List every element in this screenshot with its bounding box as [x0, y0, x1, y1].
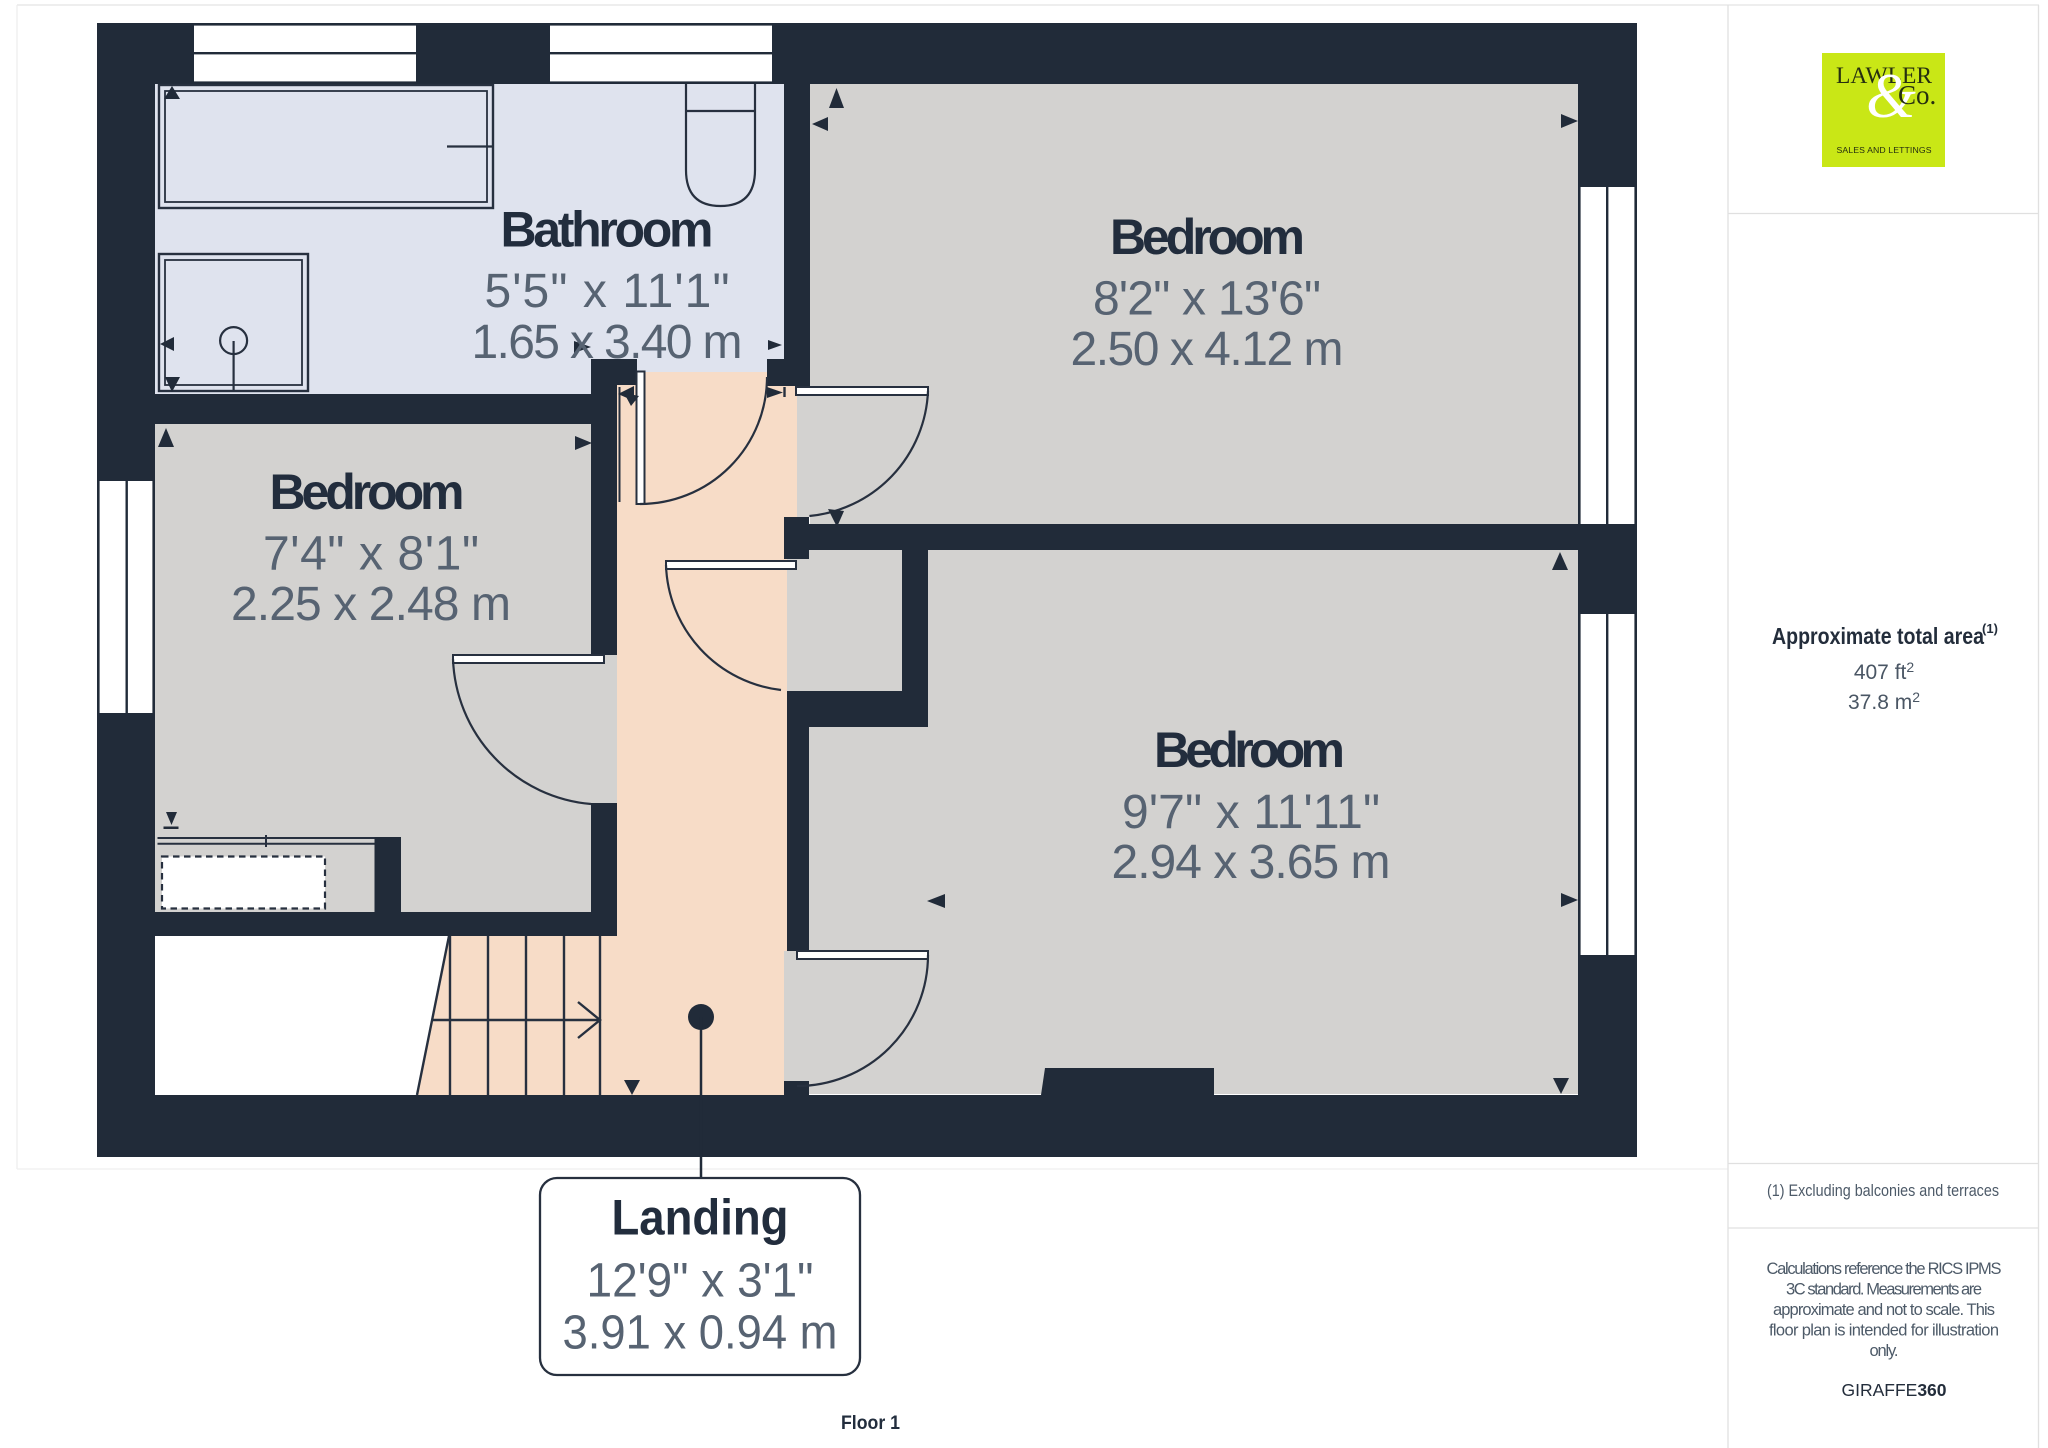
- svg-text:Approximate total area: Approximate total area: [1772, 623, 1984, 649]
- svg-text:Co.: Co.: [1898, 80, 1936, 110]
- svg-text:Bedroom: Bedroom: [270, 464, 465, 520]
- svg-text:3.91 x 0.94 m: 3.91 x 0.94 m: [563, 1307, 838, 1360]
- svg-text:(1) Excluding balconies and te: (1) Excluding balconies and terraces: [1767, 1181, 1999, 1200]
- svg-text:Calculations reference the RIC: Calculations reference the RICS IPMS: [1767, 1260, 2002, 1278]
- svg-text:1.65 x 3.40 m: 1.65 x 3.40 m: [472, 316, 743, 369]
- svg-text:3C standard. Measurements are: 3C standard. Measurements are: [1786, 1281, 1982, 1299]
- svg-text:approximate and not to scale.: approximate and not to scale. This: [1773, 1301, 1995, 1319]
- svg-text:407 ft2: 407 ft2: [1854, 659, 1915, 684]
- svg-text:GIRAFFE360: GIRAFFE360: [1841, 1380, 1946, 1400]
- svg-text:Bathroom: Bathroom: [501, 202, 714, 258]
- svg-text:9'7" x 11'11": 9'7" x 11'11": [1122, 786, 1380, 839]
- svg-text:37.8 m2: 37.8 m2: [1848, 689, 1920, 714]
- svg-text:2.25 x 2.48 m: 2.25 x 2.48 m: [231, 578, 511, 631]
- svg-text:Bedroom: Bedroom: [1110, 209, 1305, 265]
- svg-text:5'5" x 11'1": 5'5" x 11'1": [485, 265, 730, 318]
- svg-text:(1): (1): [1982, 621, 1998, 636]
- svg-text:12'9" x 3'1": 12'9" x 3'1": [587, 1255, 814, 1308]
- svg-text:SALES AND LETTINGS: SALES AND LETTINGS: [1837, 145, 1932, 155]
- svg-text:only.: only.: [1870, 1342, 1899, 1360]
- svg-text:floor plan is intended for ill: floor plan is intended for illustration: [1769, 1322, 1999, 1340]
- svg-text:Bedroom: Bedroom: [1154, 722, 1345, 778]
- svg-text:Landing: Landing: [612, 1190, 789, 1246]
- svg-text:7'4" x 8'1": 7'4" x 8'1": [263, 528, 479, 581]
- svg-text:2.50 x 4.12 m: 2.50 x 4.12 m: [1071, 323, 1344, 376]
- svg-text:Floor 1: Floor 1: [841, 1413, 900, 1434]
- svg-text:2.94 x 3.65 m: 2.94 x 3.65 m: [1112, 836, 1391, 889]
- svg-text:8'2" x 13'6": 8'2" x 13'6": [1093, 273, 1321, 326]
